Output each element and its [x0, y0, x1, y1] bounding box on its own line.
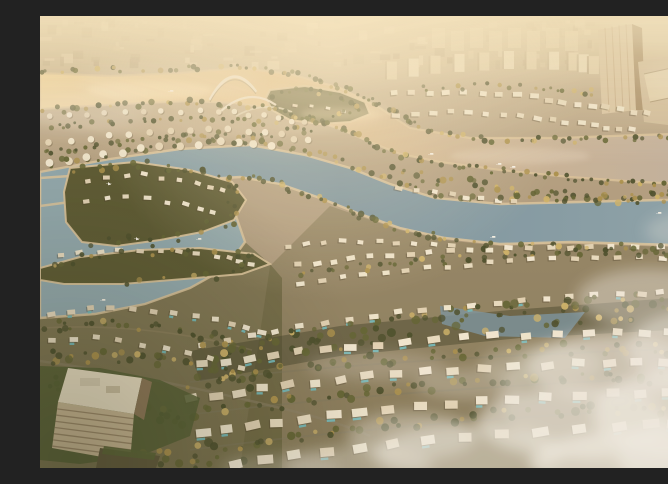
aerial-render-image	[40, 16, 668, 468]
atmosphere-overlay	[40, 16, 668, 468]
aerial-render: Aerial CGI rendering at golden hour of a…	[40, 16, 668, 468]
